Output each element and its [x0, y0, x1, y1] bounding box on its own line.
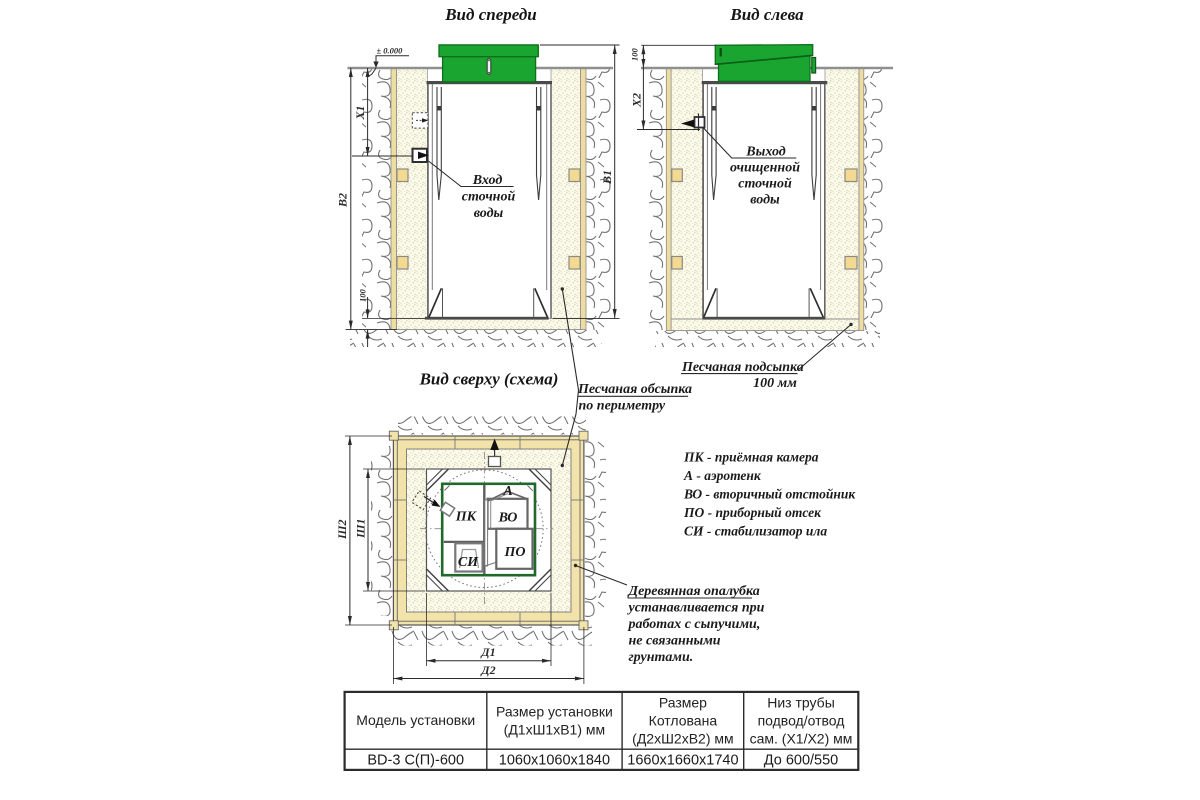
- svg-text:Деревянная опалубка: Деревянная опалубка: [627, 584, 760, 599]
- svg-text:очищенной: очищенной: [730, 161, 800, 176]
- svg-text:воды: воды: [474, 206, 504, 221]
- svg-text:А: А: [502, 484, 512, 499]
- svg-text:А - аэротенк: А - аэротенк: [683, 468, 762, 483]
- svg-text:Песчаная подсыпка: Песчаная подсыпка: [681, 360, 804, 375]
- svg-text:В1: В1: [600, 170, 614, 185]
- svg-text:Ш1: Ш1: [354, 518, 368, 539]
- svg-text:грунтами.: грунтами.: [629, 650, 694, 665]
- svg-text:Низ трубы: Низ трубы: [767, 695, 835, 711]
- svg-text:Д2: Д2: [480, 663, 495, 677]
- svg-text:(Д2хШ2хВ2) мм: (Д2хШ2хВ2) мм: [632, 731, 733, 747]
- svg-text:Д1: Д1: [480, 645, 495, 659]
- svg-text:Песчаная обсыпка: Песчаная обсыпка: [577, 382, 692, 397]
- svg-text:До 600/550: До 600/550: [764, 753, 839, 769]
- svg-text:воды: воды: [750, 193, 780, 208]
- svg-text:ПК - приёмная камера: ПК - приёмная камера: [683, 450, 819, 465]
- svg-text:сточной: сточной: [738, 177, 792, 192]
- svg-text:В2: В2: [336, 193, 350, 208]
- svg-text:1660х1660х1740: 1660х1660х1740: [627, 753, 738, 769]
- svg-text:подвод/отвод: подвод/отвод: [758, 713, 845, 729]
- svg-text:X1: X1: [353, 105, 367, 120]
- svg-text:устанавливается при: устанавливается при: [627, 601, 765, 616]
- svg-text:ВО - вторичный отстойник: ВО - вторичный отстойник: [683, 487, 856, 502]
- svg-text:ПО: ПО: [504, 545, 526, 560]
- svg-text:СИ - стабилизатор ила: СИ - стабилизатор ила: [684, 524, 827, 539]
- svg-text:100: 100: [630, 48, 640, 62]
- svg-text:ПО - приборный отсек: ПО - приборный отсек: [683, 505, 822, 520]
- svg-text:Модель установки: Модель установки: [356, 712, 475, 728]
- svg-text:Вход: Вход: [472, 173, 503, 188]
- svg-text:не связанными: не связанными: [629, 634, 721, 649]
- svg-text:BD-3 С(П)-600: BD-3 С(П)-600: [367, 753, 464, 769]
- svg-text:100: 100: [358, 289, 368, 303]
- svg-text:Выход: Выход: [745, 145, 786, 160]
- svg-text:по периметру: по периметру: [579, 399, 666, 414]
- svg-text:Размер: Размер: [659, 695, 707, 711]
- svg-text:(Д1хШ1хВ1) мм: (Д1хШ1хВ1) мм: [504, 722, 605, 738]
- svg-text:± 0.000: ± 0.000: [377, 46, 404, 56]
- svg-text:Котлована: Котлована: [649, 713, 718, 729]
- svg-text:Размер установки: Размер установки: [496, 704, 613, 720]
- svg-text:сточной: сточной: [462, 190, 516, 205]
- svg-text:сам. (Х1/Х2) мм: сам. (Х1/Х2) мм: [750, 731, 853, 747]
- svg-text:100 мм: 100 мм: [753, 376, 797, 391]
- svg-text:1060х1060х1840: 1060х1060х1840: [499, 753, 610, 769]
- svg-text:СИ: СИ: [458, 555, 479, 570]
- svg-text:Вид спереди: Вид спереди: [444, 5, 537, 24]
- svg-text:Ш2: Ш2: [335, 519, 349, 540]
- svg-text:работах с сыпучими,: работах с сыпучими,: [628, 617, 761, 632]
- svg-text:ПК: ПК: [455, 510, 478, 525]
- svg-text:Вид сверху (схема): Вид сверху (схема): [419, 370, 559, 389]
- svg-text:Вид слева: Вид слева: [729, 5, 804, 24]
- svg-text:ВО: ВО: [498, 511, 518, 526]
- svg-text:X2: X2: [630, 93, 644, 108]
